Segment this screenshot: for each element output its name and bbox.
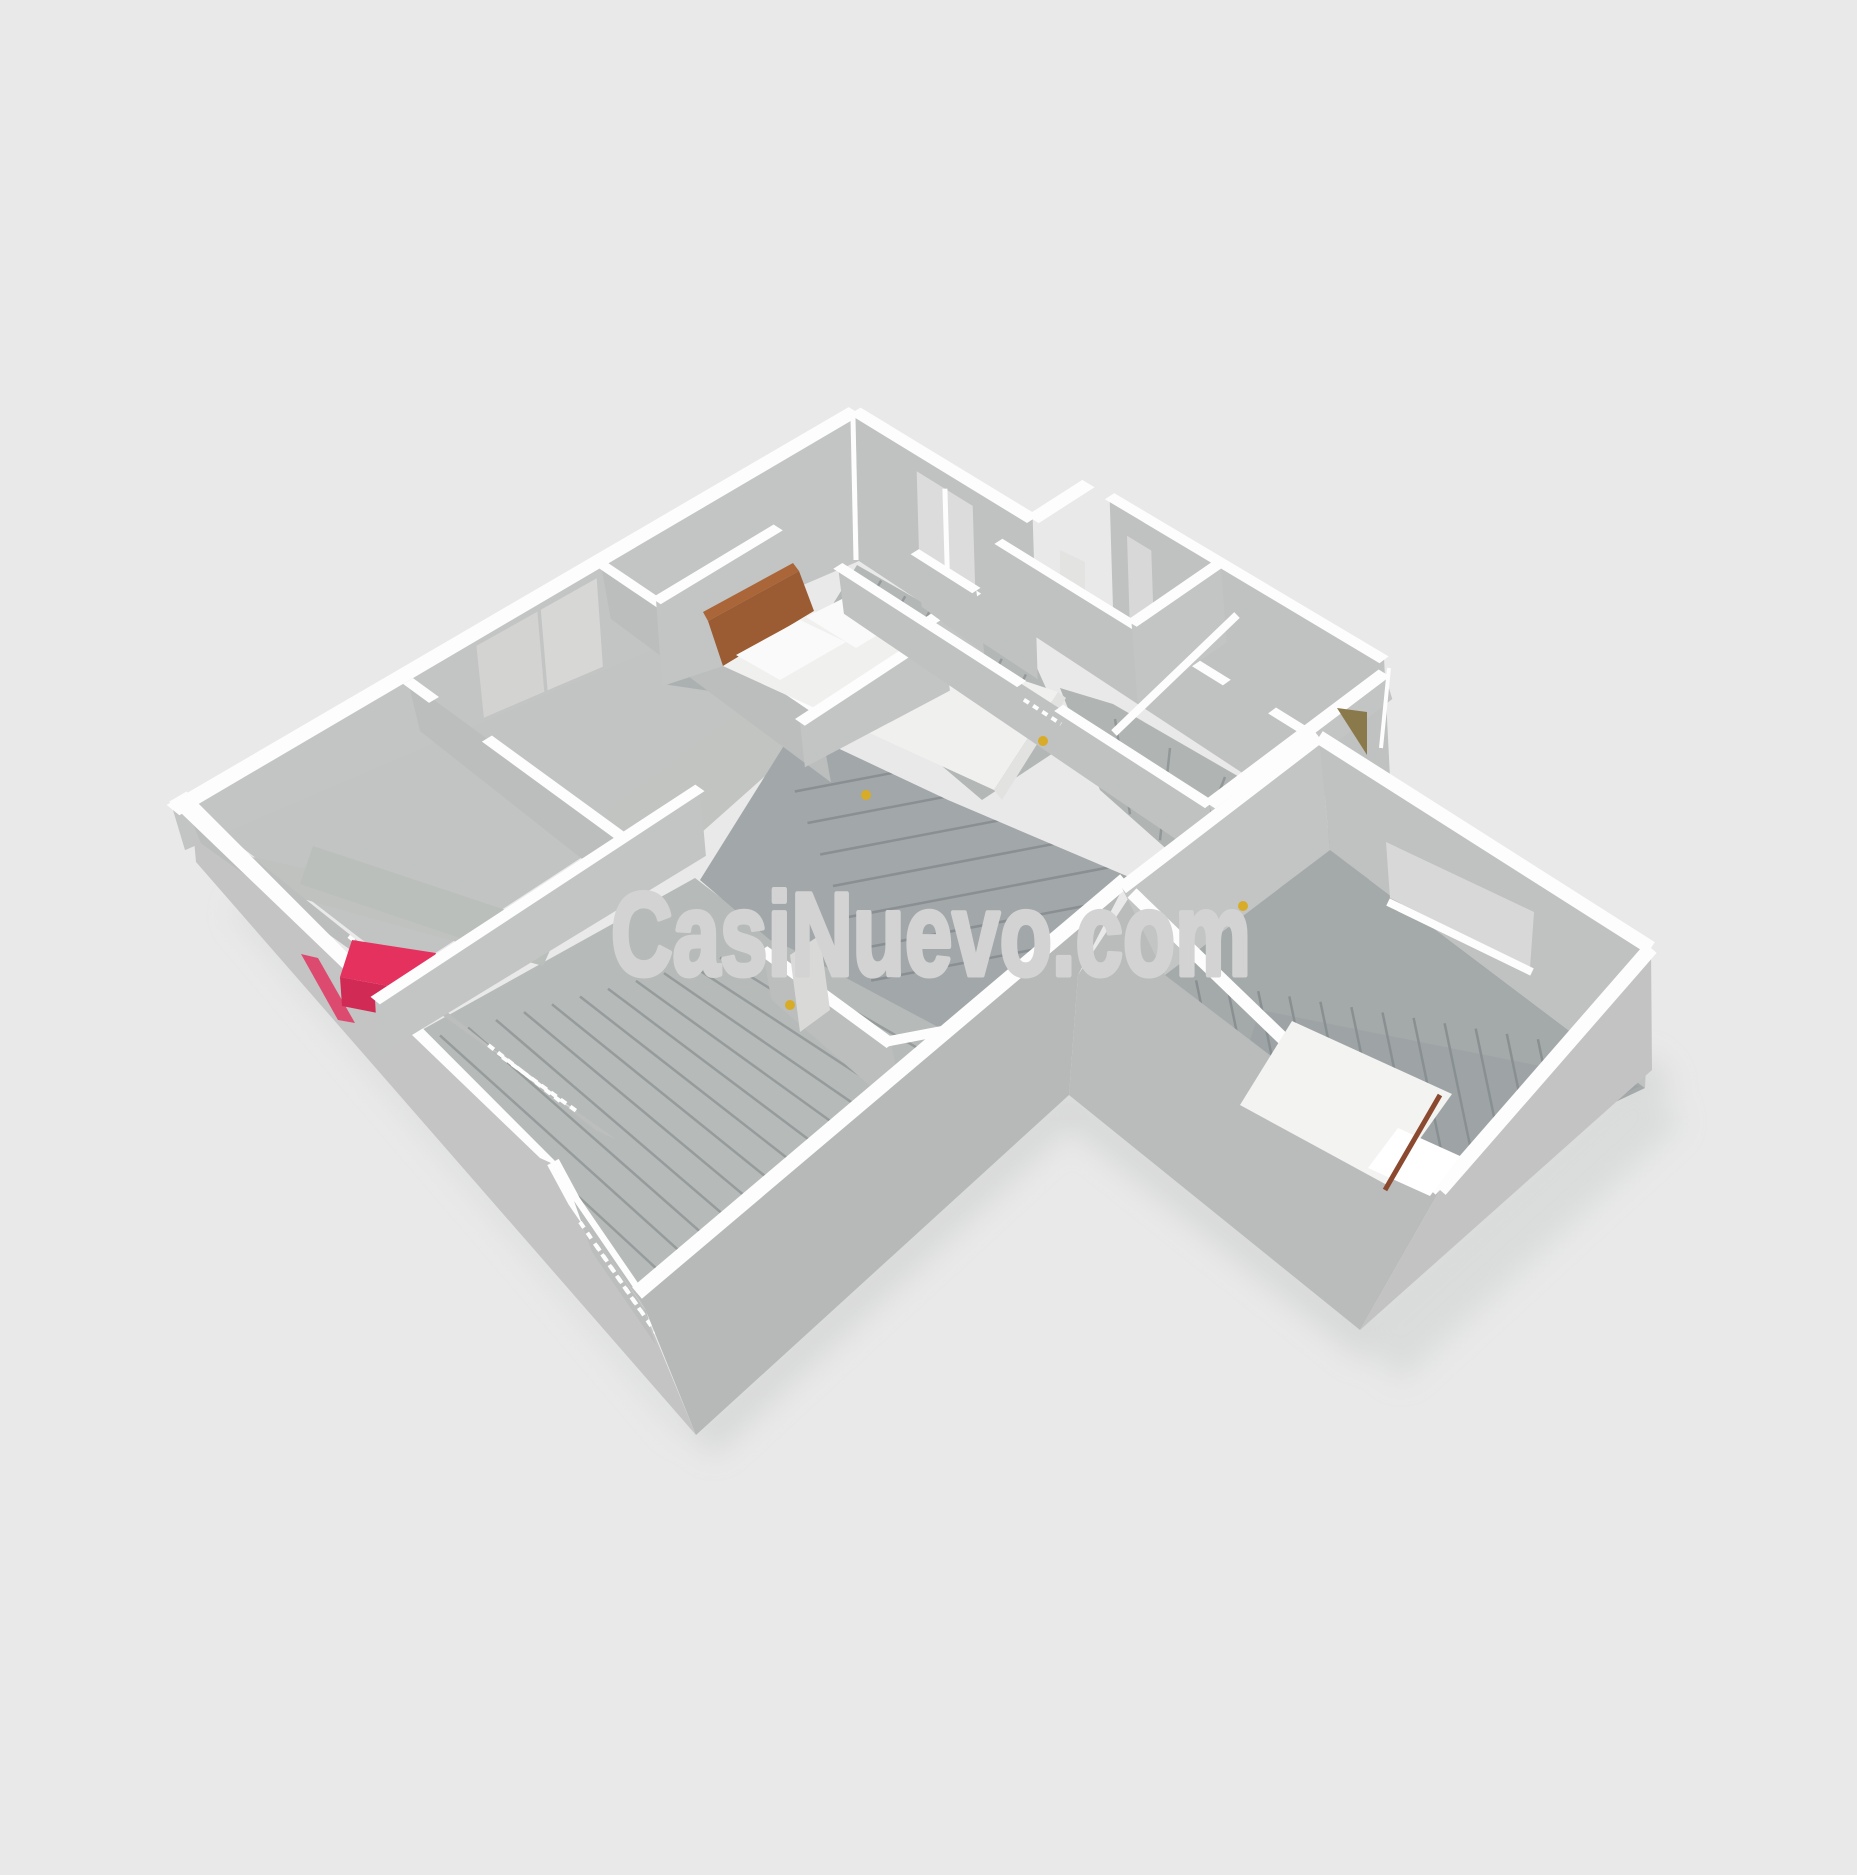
svg-text:CasiNuevo.com: CasiNuevo.com xyxy=(611,869,1251,1001)
